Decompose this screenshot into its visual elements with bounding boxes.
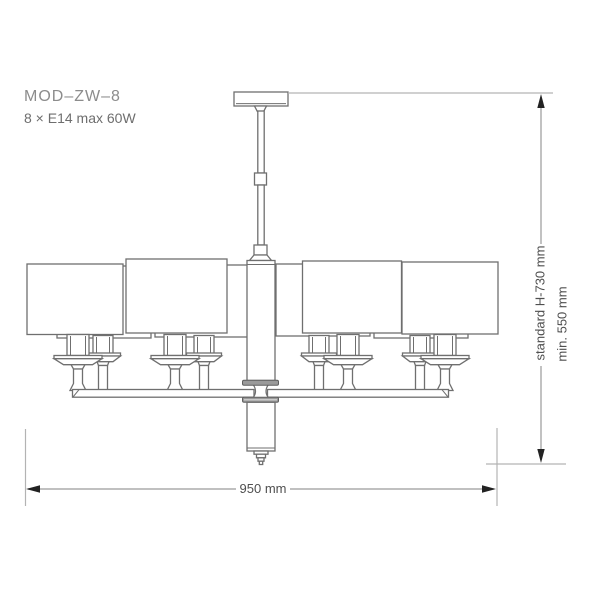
central-column-lower: [247, 402, 275, 451]
arrow-right-icon: [482, 485, 496, 492]
hanging-rod-upper: [258, 111, 264, 173]
hub-ring-top: [243, 380, 279, 385]
product-model-label: MOD–ZW–8: [24, 88, 121, 106]
lamp-shade-front: [303, 261, 402, 333]
arrow-left-icon: [26, 485, 40, 492]
canopy-and-rod: [234, 92, 288, 261]
height-standard-dimension-label: standard H-730 mm: [533, 246, 548, 361]
column-lower-and-finial: [247, 402, 275, 464]
central-column-upper: [247, 261, 275, 381]
rod-flare: [250, 255, 272, 261]
arrow-up-icon: [537, 94, 544, 108]
chandelier-dimension-diagram: MOD–ZW–8 8 × E14 max 60W 950 mm standard…: [0, 0, 600, 600]
candle-front: [151, 335, 199, 391]
rod-collar-bottom: [254, 245, 267, 255]
arrow-down-icon: [537, 449, 544, 463]
candle-front: [324, 335, 372, 391]
finial-tip: [259, 461, 262, 464]
lamp-shade-front: [27, 264, 123, 335]
lamp-shade-front: [402, 262, 498, 334]
width-dimension-label: 950 mm: [203, 481, 323, 496]
height-min-dimension-label: min. 550 mm: [555, 286, 570, 361]
product-spec-label: 8 × E14 max 60W: [24, 110, 136, 126]
arm-bar-right: [268, 390, 449, 398]
lamp-shade-front: [126, 259, 227, 333]
rod-coupler: [255, 173, 267, 185]
hanging-rod-lower: [258, 185, 264, 245]
arm-bar-left: [73, 390, 255, 398]
